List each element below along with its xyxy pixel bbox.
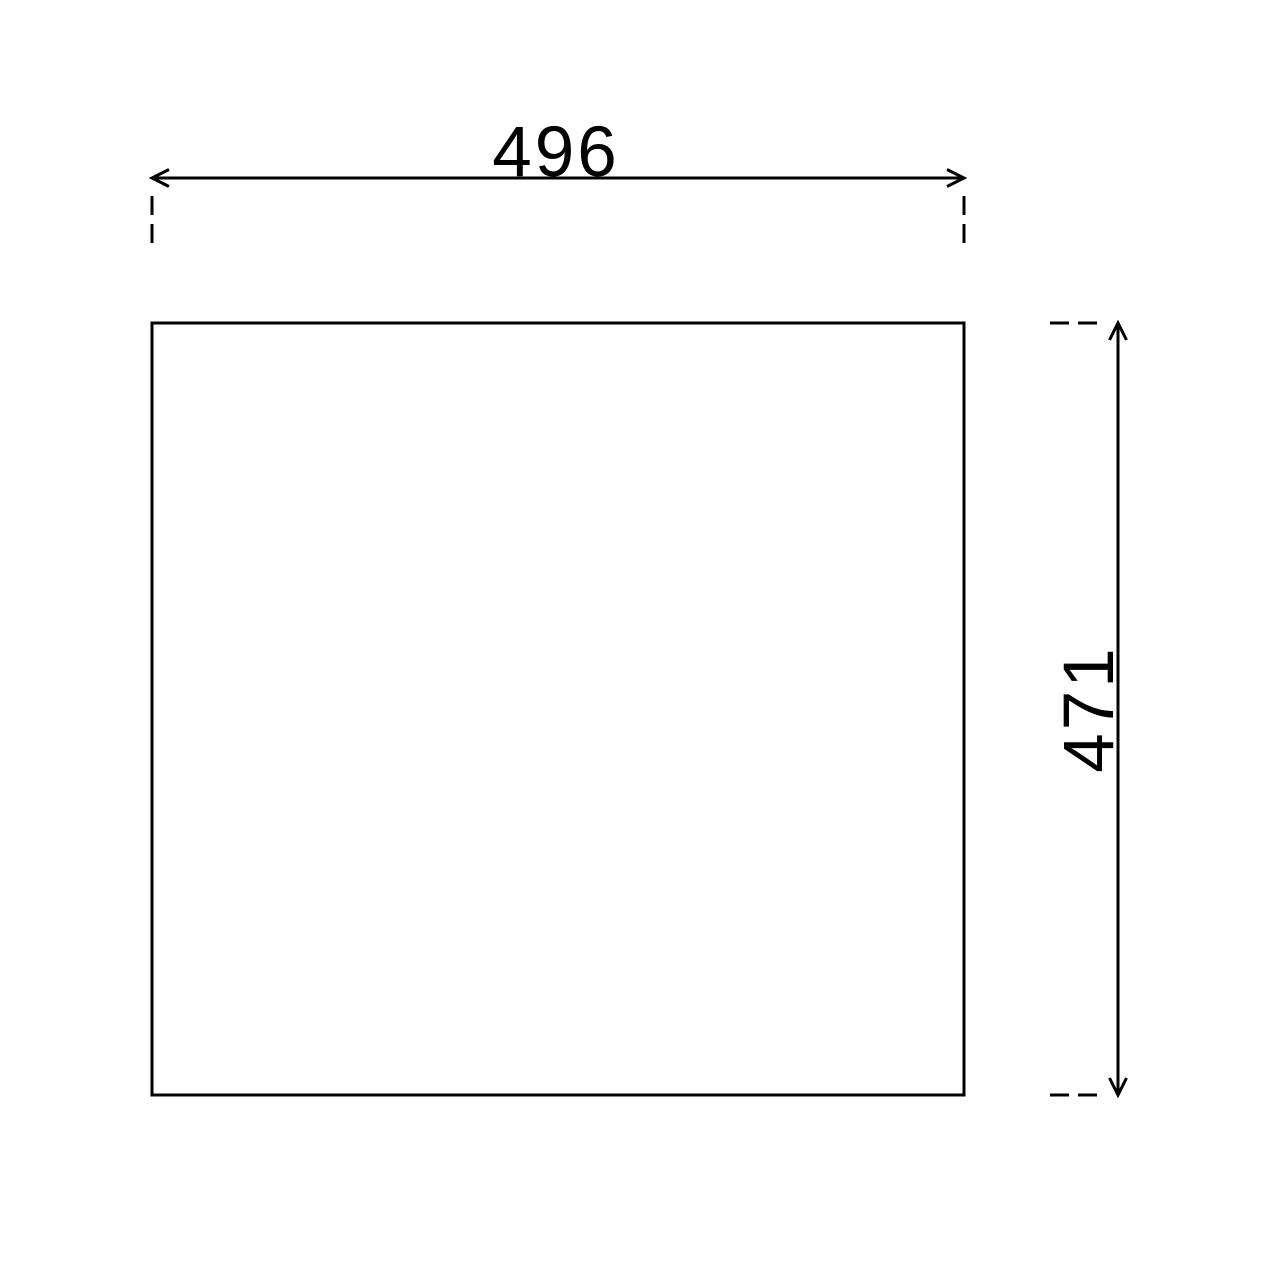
width-dimension: 496: [152, 113, 964, 245]
height-dimension-label: 471: [1050, 645, 1129, 772]
height-dimension: 471: [1050, 323, 1129, 1095]
width-dimension-label: 496: [492, 113, 619, 192]
drawing-page: 496 471: [0, 0, 1276, 1276]
part-outline-rectangle: [152, 323, 964, 1095]
cad-drawing-canvas: 496 471: [0, 0, 1276, 1276]
